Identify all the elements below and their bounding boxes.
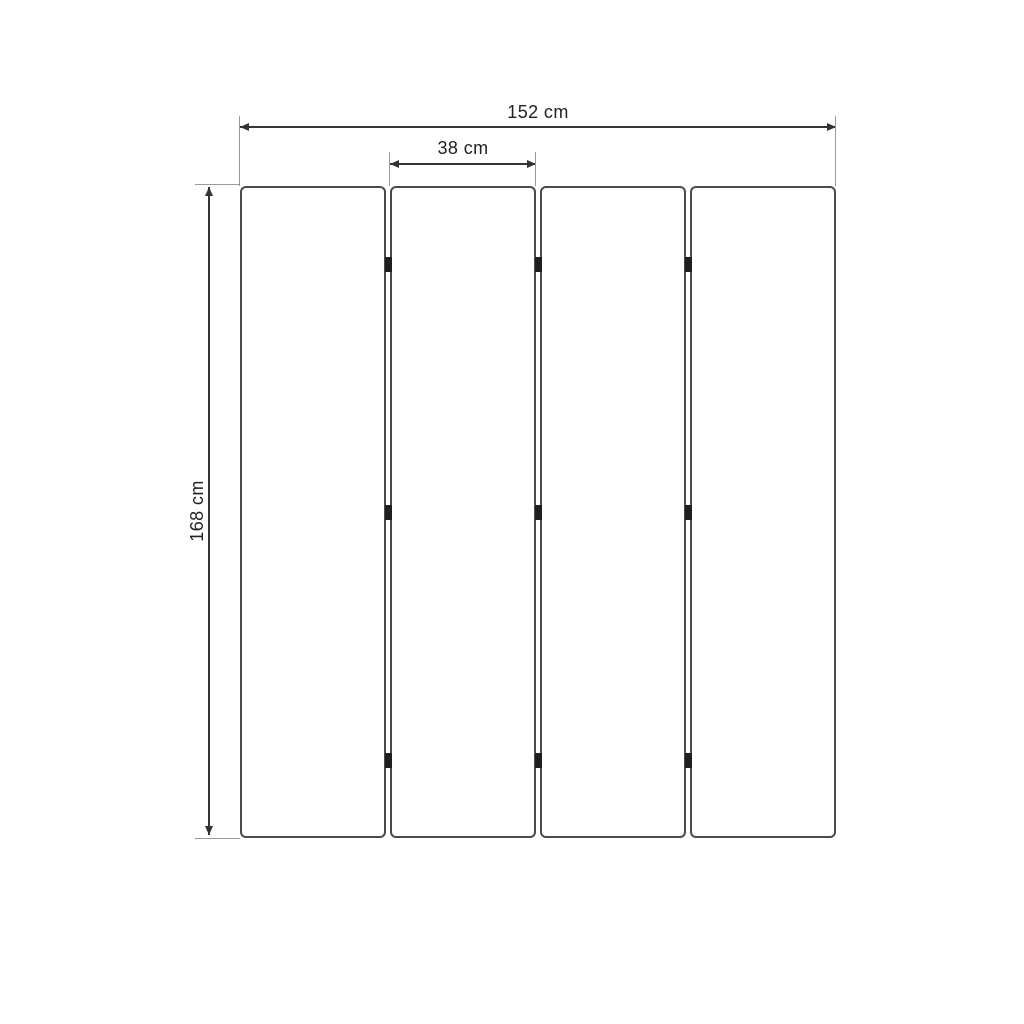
panel-width-label: 38 cm: [390, 137, 536, 159]
total-width-arrow-left-icon: [240, 123, 249, 131]
panel-hinge-2-2: [535, 505, 542, 520]
panel-hinge-3-1: [685, 257, 692, 272]
total-width-dimension-line: [240, 126, 836, 128]
panel-hinge-3-3: [685, 753, 692, 768]
panel-hinge-1-3: [385, 753, 392, 768]
panel-hinge-1-2: [385, 505, 392, 520]
total-width-label: 152 cm: [240, 101, 836, 123]
height-extension-line-bottom: [195, 838, 240, 839]
panel-3: [540, 186, 686, 838]
height-extension-line-top: [195, 184, 240, 185]
height-arrow-up-icon: [205, 187, 213, 196]
panel-width-extension-line-left: [389, 152, 390, 186]
dimension-diagram: 152 cm 38 cm 168 cm: [0, 0, 1024, 1024]
panel-4: [690, 186, 836, 838]
height-label: 168 cm: [186, 471, 208, 551]
height-arrow-down-icon: [205, 826, 213, 835]
panel-width-arrow-left-icon: [390, 160, 399, 168]
height-dimension-line: [208, 187, 210, 835]
panel-1: [240, 186, 386, 838]
panel-hinge-2-1: [535, 257, 542, 272]
panel-width-extension-line-right: [535, 152, 536, 186]
panel-hinge-3-2: [685, 505, 692, 520]
total-width-extension-line-left: [239, 116, 240, 186]
panel-width-dimension-line: [390, 163, 536, 165]
total-width-extension-line-right: [835, 116, 836, 186]
panel-hinge-1-1: [385, 257, 392, 272]
panel-2: [390, 186, 536, 838]
panel-hinge-2-3: [535, 753, 542, 768]
